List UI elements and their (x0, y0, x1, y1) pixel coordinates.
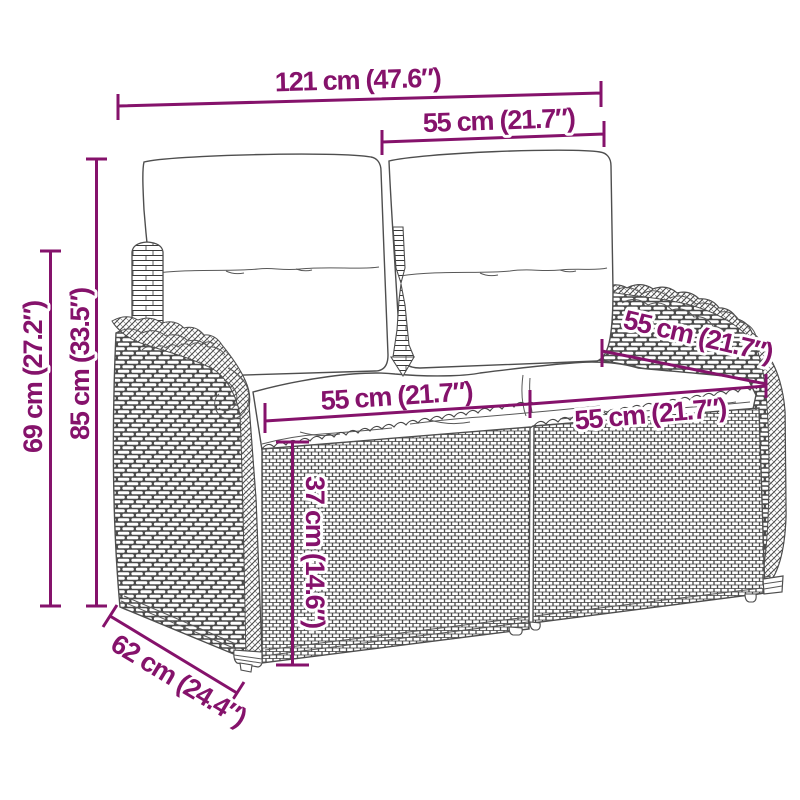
svg-text:55 cm (21.7″): 55 cm (21.7″) (422, 103, 575, 138)
svg-text:69 cm (27.2″): 69 cm (27.2″) (18, 301, 48, 453)
svg-text:121 cm (47.6″): 121 cm (47.6″) (274, 63, 441, 98)
svg-text:85 cm (33.5″): 85 cm (33.5″) (65, 288, 95, 440)
svg-text:37 cm (14.6″): 37 cm (14.6″) (300, 476, 330, 628)
